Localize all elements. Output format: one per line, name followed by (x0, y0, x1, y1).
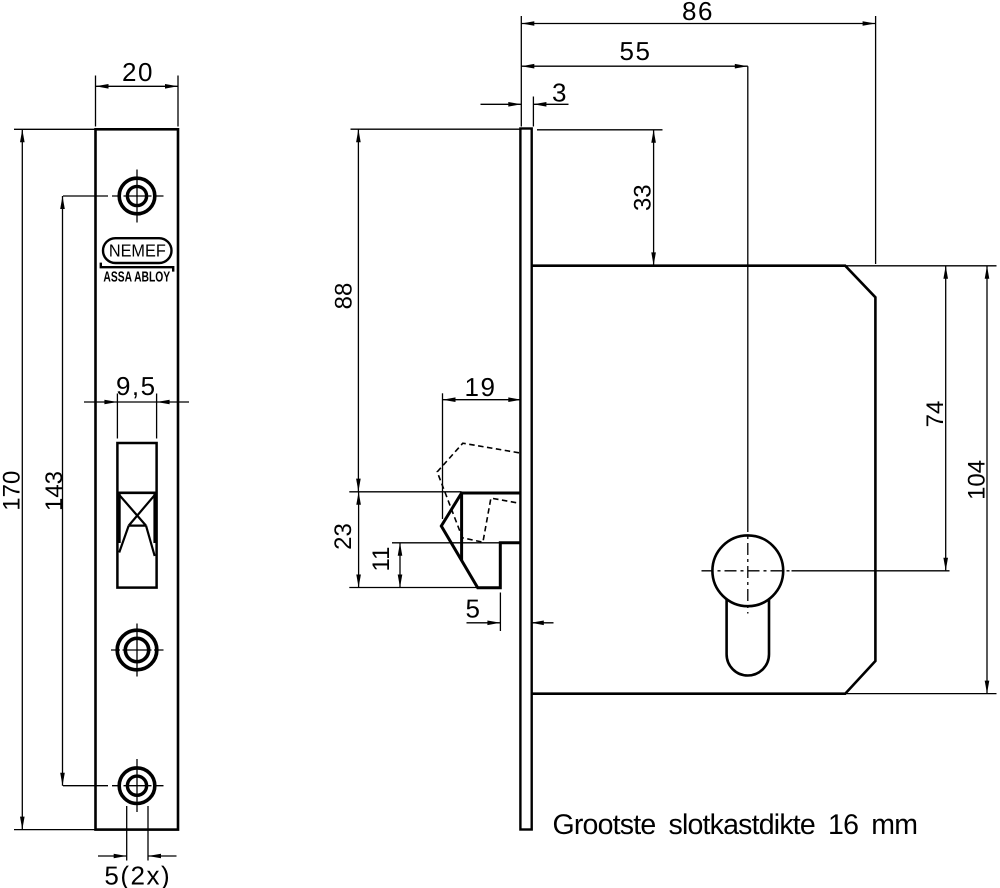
svg-text:23: 23 (330, 523, 357, 550)
svg-text:55: 55 (620, 36, 652, 66)
svg-text:88: 88 (331, 283, 358, 310)
svg-text:5(2x): 5(2x) (104, 861, 171, 888)
svg-text:5: 5 (466, 594, 482, 624)
svg-text:86: 86 (682, 0, 714, 26)
svg-text:Grootste slotkastdikte 16 mm: Grootste slotkastdikte 16 mm (553, 809, 918, 841)
svg-text:NEMEF: NEMEF (109, 241, 166, 261)
svg-text:ASSA ABLOY: ASSA ABLOY (103, 270, 170, 286)
svg-text:33: 33 (630, 184, 657, 211)
svg-text:74: 74 (922, 401, 949, 428)
svg-text:170: 170 (0, 471, 26, 511)
svg-text:11: 11 (368, 547, 395, 572)
svg-text:20: 20 (122, 57, 154, 87)
svg-text:19: 19 (465, 372, 497, 402)
svg-text:143: 143 (41, 471, 68, 511)
svg-text:104: 104 (964, 460, 991, 500)
svg-text:9,5: 9,5 (116, 371, 157, 401)
svg-text:3: 3 (552, 77, 568, 107)
